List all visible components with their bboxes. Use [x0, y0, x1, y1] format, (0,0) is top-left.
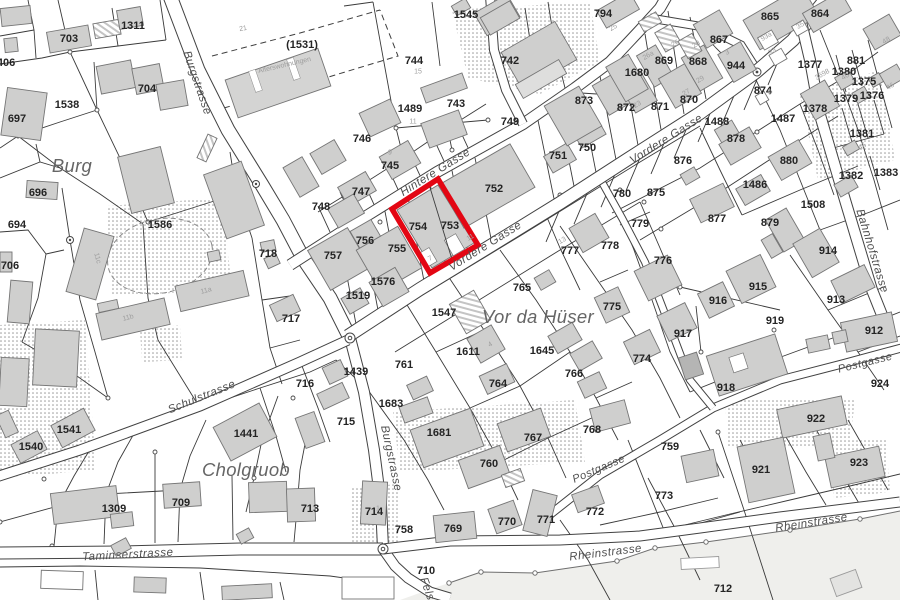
svg-text:774: 774: [633, 353, 652, 365]
svg-text:716: 716: [296, 378, 314, 390]
svg-text:777: 777: [561, 245, 579, 257]
svg-text:706: 706: [1, 260, 19, 272]
svg-text:1538: 1538: [55, 99, 79, 111]
svg-text:(1531): (1531): [286, 39, 318, 51]
svg-text:776: 776: [654, 255, 672, 267]
svg-text:1519: 1519: [346, 290, 370, 302]
svg-text:761: 761: [395, 359, 413, 371]
svg-text:760: 760: [480, 458, 498, 470]
svg-text:1311: 1311: [121, 20, 145, 32]
svg-text:1680: 1680: [625, 67, 649, 79]
svg-text:1381: 1381: [850, 128, 874, 140]
svg-text:924: 924: [871, 378, 890, 390]
svg-text:748: 748: [312, 201, 330, 213]
svg-text:865: 865: [761, 11, 779, 23]
svg-text:21: 21: [239, 25, 248, 33]
svg-text:697: 697: [8, 113, 26, 125]
svg-text:867: 867: [710, 34, 728, 46]
svg-text:876: 876: [674, 155, 692, 167]
svg-text:873: 873: [575, 95, 593, 107]
svg-text:744: 744: [405, 55, 424, 67]
svg-text:1486: 1486: [743, 179, 767, 191]
svg-text:1309: 1309: [102, 503, 126, 515]
svg-text:780: 780: [613, 188, 631, 200]
svg-text:Burg: Burg: [52, 155, 93, 176]
svg-text:714: 714: [365, 506, 384, 518]
svg-text:912: 912: [865, 325, 883, 337]
svg-text:921: 921: [752, 464, 770, 476]
svg-text:752: 752: [485, 183, 503, 195]
svg-text:913: 913: [827, 294, 845, 306]
svg-text:766: 766: [565, 368, 583, 380]
svg-text:Vor da Hüser: Vor da Hüser: [482, 306, 594, 327]
svg-text:742: 742: [501, 55, 519, 67]
svg-text:919: 919: [766, 315, 784, 327]
svg-text:868: 868: [689, 56, 707, 68]
svg-text:864: 864: [811, 8, 830, 20]
svg-text:704: 704: [138, 83, 157, 95]
svg-text:764: 764: [489, 378, 508, 390]
svg-text:15: 15: [414, 69, 422, 76]
svg-text:1645: 1645: [530, 345, 554, 357]
svg-text:768: 768: [583, 424, 601, 436]
svg-text:703: 703: [60, 33, 78, 45]
svg-text:917: 917: [674, 328, 692, 340]
svg-text:1383: 1383: [874, 167, 898, 179]
svg-text:1681: 1681: [427, 427, 451, 439]
svg-text:880: 880: [780, 155, 798, 167]
svg-text:1489: 1489: [398, 103, 422, 115]
svg-text:1547: 1547: [432, 307, 456, 319]
svg-text:1382: 1382: [839, 170, 863, 182]
svg-text:1586: 1586: [148, 219, 172, 231]
svg-text:770: 770: [498, 516, 516, 528]
svg-text:767: 767: [524, 432, 542, 444]
svg-text:944: 944: [727, 60, 746, 72]
svg-text:1541: 1541: [57, 424, 81, 436]
svg-text:779: 779: [631, 218, 649, 230]
svg-text:878: 878: [727, 133, 745, 145]
svg-text:754: 754: [409, 221, 428, 233]
svg-text:743: 743: [447, 98, 465, 110]
svg-text:715: 715: [337, 416, 355, 428]
svg-text:1545: 1545: [454, 9, 478, 21]
svg-text:1377: 1377: [798, 59, 822, 71]
svg-text:1439: 1439: [344, 366, 368, 378]
svg-text:922: 922: [807, 413, 825, 425]
svg-text:759: 759: [661, 441, 679, 453]
svg-text:717: 717: [282, 313, 300, 325]
svg-text:750: 750: [578, 142, 596, 154]
svg-text:871: 871: [651, 101, 669, 113]
svg-text:914: 914: [819, 245, 838, 257]
svg-text:712: 712: [714, 583, 732, 595]
svg-text:756: 756: [356, 235, 374, 247]
svg-text:694: 694: [8, 219, 27, 231]
svg-text:710: 710: [417, 565, 435, 577]
svg-text:11: 11: [409, 119, 416, 126]
svg-text:1: 1: [376, 506, 380, 513]
svg-text:1540: 1540: [19, 441, 43, 453]
svg-text:1611: 1611: [456, 346, 480, 358]
svg-text:755: 755: [388, 243, 406, 255]
svg-text:915: 915: [749, 281, 767, 293]
svg-text:918: 918: [717, 382, 735, 394]
svg-text:745: 745: [381, 160, 399, 172]
svg-text:1508: 1508: [801, 199, 825, 211]
svg-text:747: 747: [352, 186, 370, 198]
svg-text:869: 869: [655, 55, 673, 67]
svg-text:749: 749: [501, 116, 519, 128]
svg-text:1576: 1576: [371, 276, 395, 288]
svg-text:753: 753: [441, 220, 459, 232]
svg-text:Cholgruob: Cholgruob: [202, 459, 290, 480]
svg-text:746: 746: [353, 133, 371, 145]
svg-text:709: 709: [172, 497, 190, 509]
svg-text:778: 778: [601, 240, 619, 252]
svg-text:773: 773: [655, 490, 673, 502]
svg-text:923: 923: [850, 457, 868, 469]
svg-text:771: 771: [537, 514, 555, 526]
svg-text:772: 772: [586, 506, 604, 518]
svg-text:718: 718: [259, 248, 277, 260]
svg-text:406: 406: [0, 57, 15, 69]
svg-text:775: 775: [603, 301, 621, 313]
svg-text:881: 881: [847, 55, 865, 67]
svg-text:877: 877: [708, 213, 726, 225]
svg-text:9: 9: [388, 150, 392, 157]
svg-text:1441: 1441: [234, 428, 258, 440]
svg-text:696: 696: [29, 187, 47, 199]
svg-text:1375: 1375: [852, 76, 876, 88]
svg-text:1488: 1488: [705, 116, 729, 128]
svg-text:751: 751: [549, 150, 567, 162]
svg-text:757: 757: [324, 250, 342, 262]
svg-text:1376: 1376: [860, 90, 884, 102]
svg-text:9: 9: [768, 90, 772, 97]
svg-text:765: 765: [513, 282, 531, 294]
svg-text:794: 794: [594, 8, 613, 20]
svg-text:758: 758: [395, 524, 413, 536]
svg-text:875: 875: [647, 187, 665, 199]
svg-text:1379: 1379: [834, 93, 858, 105]
svg-text:1683: 1683: [379, 398, 403, 410]
svg-text:916: 916: [709, 295, 727, 307]
svg-text:1378: 1378: [803, 103, 827, 115]
svg-text:769: 769: [444, 523, 462, 535]
svg-text:879: 879: [761, 217, 779, 229]
svg-text:1487: 1487: [771, 113, 795, 125]
svg-text:713: 713: [301, 503, 319, 515]
